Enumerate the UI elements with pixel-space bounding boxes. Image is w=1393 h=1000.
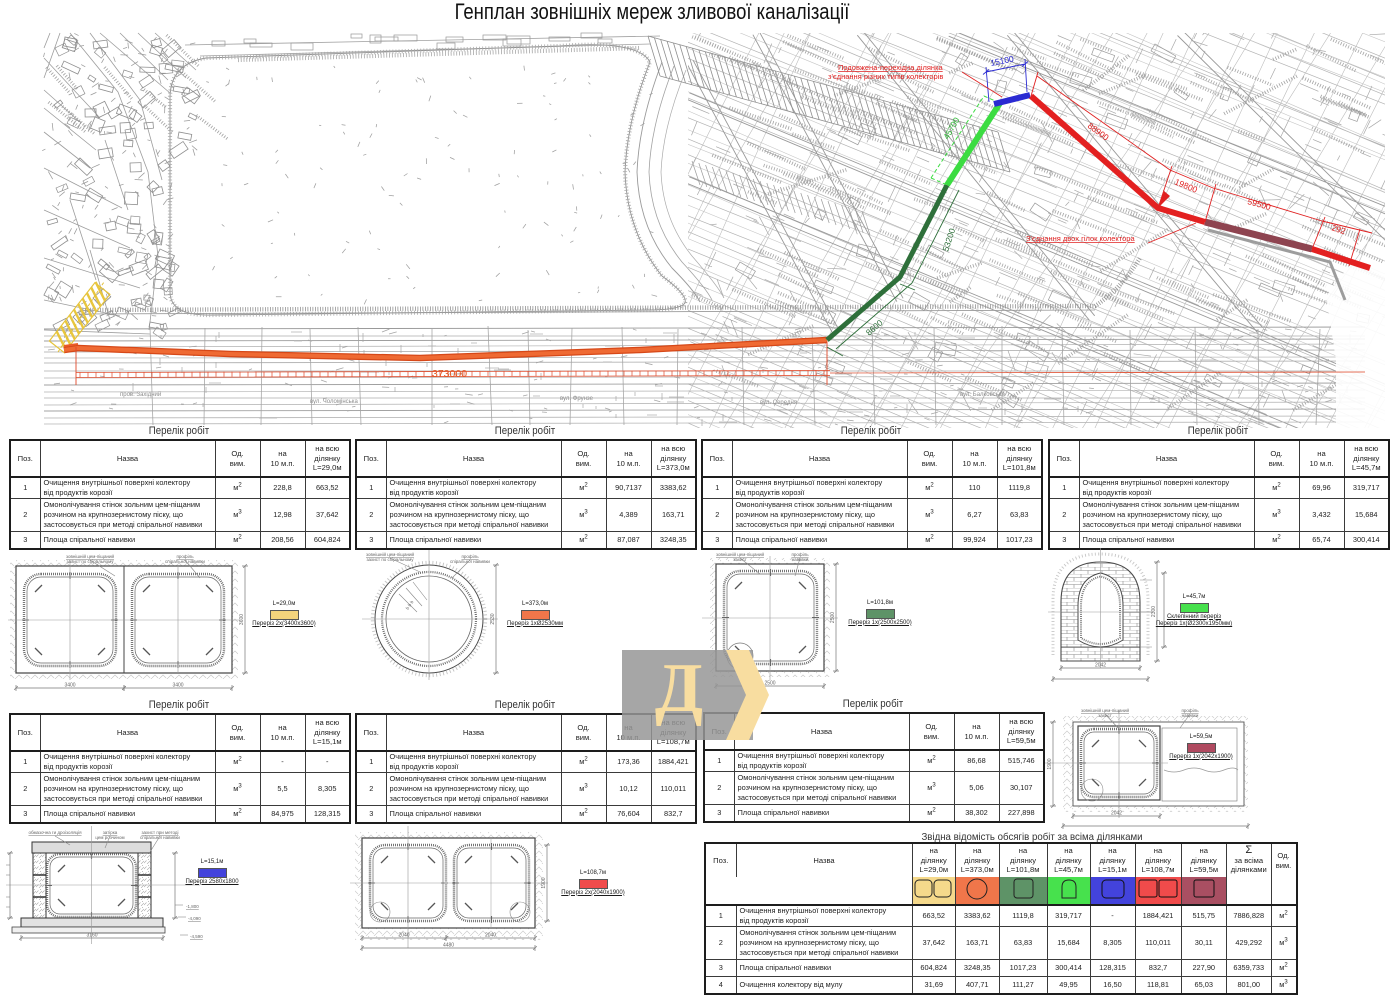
svg-text:3400: 3400 — [172, 683, 183, 689]
svg-text:3160: 3160 — [86, 933, 97, 939]
svg-text:3400: 3400 — [64, 683, 75, 689]
svg-text:цем розчином: цем розчином — [95, 835, 124, 840]
svg-text:4480: 4480 — [443, 943, 454, 949]
svg-text:спіральної навивки: спіральної навивки — [450, 559, 490, 564]
svg-text:захист: захист — [1098, 713, 1112, 718]
svg-text:захист по спіральному: захист по спіральному — [366, 557, 414, 562]
svg-text:захист по спіральному: захист по спіральному — [66, 559, 114, 564]
svg-text:2042: 2042 — [1095, 663, 1106, 669]
svg-text:обмазочна ги дроізоляція: обмазочна ги дроізоляція — [28, 830, 82, 835]
svg-text:1900: 1900 — [1047, 758, 1053, 769]
svg-text:1900: 1900 — [541, 877, 547, 888]
svg-text:спіральної навивки: спіральної навивки — [165, 559, 205, 564]
svg-text:-4,090: -4,090 — [188, 916, 201, 921]
svg-text:2040: 2040 — [398, 933, 409, 939]
svg-text:захист: захист — [733, 557, 747, 562]
svg-text:Д: Д — [655, 650, 703, 727]
svg-text:-1,800: -1,800 — [186, 904, 199, 909]
svg-text:-4,590: -4,590 — [190, 934, 203, 939]
svg-text:навивки: навивки — [1182, 713, 1199, 718]
svg-text:спіральної навивки: спіральної навивки — [140, 835, 180, 840]
svg-text:2040: 2040 — [485, 933, 496, 939]
svg-text:навивки: навивки — [792, 557, 809, 562]
svg-text:2042: 2042 — [1111, 811, 1122, 817]
